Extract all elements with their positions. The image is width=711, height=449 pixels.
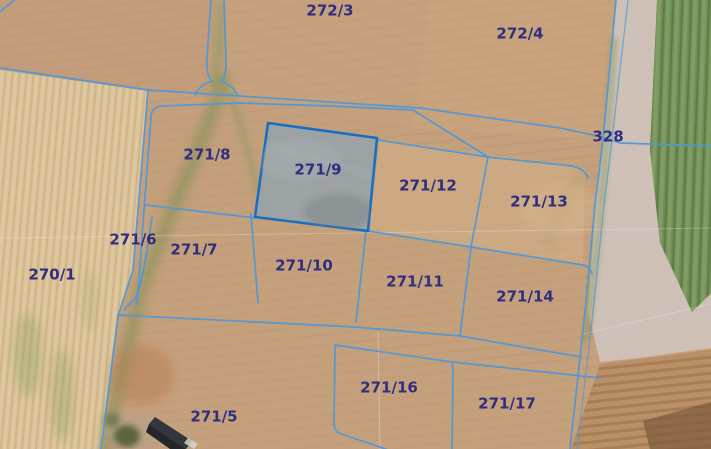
aerial-imagery-canvas xyxy=(0,0,711,449)
selected-parcel-group xyxy=(255,123,377,231)
map-viewport[interactable]: 272/3272/4328271/8271/9271/12271/13271/6… xyxy=(0,0,711,449)
